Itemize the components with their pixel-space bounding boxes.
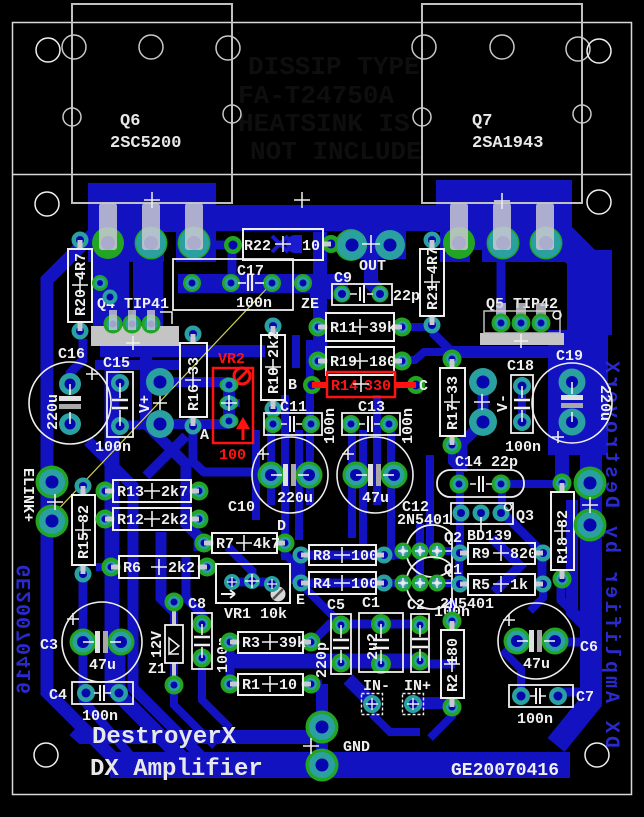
svg-text:220u: 220u	[45, 394, 62, 430]
svg-text:R1: R1	[242, 677, 260, 694]
svg-text:100n: 100n	[82, 708, 118, 725]
svg-text:R11: R11	[330, 320, 357, 337]
svg-text:DestroyerX: DestroyerX	[92, 724, 237, 751]
svg-text:1k: 1k	[510, 577, 528, 594]
svg-text:47u: 47u	[523, 656, 550, 673]
svg-text:VR2: VR2	[218, 351, 245, 368]
svg-text:E: E	[296, 592, 305, 609]
svg-text:2k2: 2k2	[161, 512, 188, 529]
svg-text:12V: 12V	[149, 631, 166, 658]
svg-text:R18 82: R18 82	[555, 510, 572, 564]
svg-text:ELINK+: ELINK+	[19, 468, 36, 522]
svg-text:2SC5200: 2SC5200	[110, 134, 181, 153]
svg-text:D: D	[277, 518, 286, 535]
svg-text:IN+: IN+	[404, 678, 431, 695]
svg-text:R15 82: R15 82	[76, 505, 93, 559]
svg-text:4k7: 4k7	[253, 536, 280, 553]
svg-text:C15: C15	[103, 355, 130, 372]
svg-text:C17: C17	[237, 263, 264, 280]
svg-text:39k: 39k	[279, 635, 306, 652]
svg-text:V+: V+	[137, 395, 154, 413]
svg-text:R7: R7	[216, 536, 234, 553]
svg-text:Q6: Q6	[120, 112, 140, 131]
svg-text:OUT: OUT	[359, 258, 386, 275]
svg-text:100n: 100n	[400, 408, 417, 444]
svg-text:R4: R4	[313, 576, 331, 593]
svg-text:820: 820	[510, 546, 537, 563]
svg-text:2u2: 2u2	[365, 633, 382, 660]
svg-text:FA-T24750A: FA-T24750A	[238, 81, 394, 111]
svg-text:C16: C16	[58, 346, 85, 363]
svg-text:220u: 220u	[277, 490, 313, 507]
svg-text:2k7: 2k7	[161, 484, 188, 501]
svg-text:C2: C2	[407, 597, 425, 614]
svg-text:220u: 220u	[596, 385, 613, 421]
svg-text:10: 10	[302, 238, 320, 255]
svg-text:47u: 47u	[362, 490, 389, 507]
svg-text:100n: 100n	[322, 408, 339, 444]
svg-text:GND: GND	[343, 739, 370, 756]
svg-text:R3: R3	[242, 635, 260, 652]
svg-text:180: 180	[369, 354, 396, 371]
svg-text:HEATSINK IS: HEATSINK IS	[238, 109, 410, 139]
svg-text:Z1: Z1	[148, 661, 166, 678]
svg-text:DISSIP TYPE: DISSIP TYPE	[248, 52, 420, 82]
svg-text:R12: R12	[117, 512, 144, 529]
svg-text:GE20070416: GE20070416	[451, 761, 559, 781]
svg-text:C9: C9	[334, 270, 352, 287]
svg-text:47u: 47u	[89, 657, 116, 674]
svg-text:R19: R19	[330, 354, 357, 371]
svg-text:ZE: ZE	[301, 296, 319, 313]
svg-text:100n: 100n	[505, 439, 541, 456]
svg-text:R6: R6	[123, 560, 141, 577]
svg-text:Q3: Q3	[516, 508, 534, 525]
svg-text:C4: C4	[49, 687, 67, 704]
svg-text:2k2: 2k2	[168, 560, 195, 577]
svg-text:100n: 100n	[517, 711, 553, 728]
svg-text:R2 180: R2 180	[445, 638, 462, 692]
svg-text:C5: C5	[327, 597, 345, 614]
svg-text:R8: R8	[313, 548, 331, 565]
svg-text:C3: C3	[40, 637, 58, 654]
svg-text:C6: C6	[580, 639, 598, 656]
svg-text:DX Amplifier: DX Amplifier	[90, 756, 263, 783]
svg-text:VR1 10k: VR1 10k	[224, 606, 287, 623]
svg-text:R22: R22	[244, 238, 271, 255]
svg-text:10: 10	[279, 677, 297, 694]
svg-text:R20 4R7: R20 4R7	[73, 253, 90, 316]
svg-text:Q7: Q7	[472, 112, 492, 131]
svg-text:R9: R9	[472, 546, 490, 563]
svg-text:R13: R13	[117, 484, 144, 501]
svg-text:C7: C7	[576, 689, 594, 706]
svg-text:R16 33: R16 33	[186, 357, 203, 411]
svg-text:C14 22p: C14 22p	[455, 454, 518, 471]
svg-text:100n: 100n	[95, 439, 131, 456]
svg-text:IN-: IN-	[363, 678, 390, 695]
svg-text:R10 2k2: R10 2k2	[266, 331, 283, 394]
svg-text:A: A	[200, 427, 209, 444]
svg-text:C11: C11	[280, 399, 307, 416]
svg-text:100: 100	[351, 548, 378, 565]
svg-text:R21 4R7: R21 4R7	[425, 247, 442, 310]
svg-text:100: 100	[219, 447, 246, 464]
svg-text:C13: C13	[358, 399, 385, 416]
svg-text:39k: 39k	[369, 320, 396, 337]
svg-text:C8: C8	[188, 596, 206, 613]
svg-text:NOT INCLUDE: NOT INCLUDE	[250, 137, 422, 167]
svg-text:2SA1943: 2SA1943	[472, 134, 543, 153]
svg-text:100: 100	[351, 576, 378, 593]
svg-text:Q2: Q2	[444, 530, 462, 547]
svg-text:C19: C19	[556, 348, 583, 365]
svg-text:22p: 22p	[393, 288, 420, 305]
svg-text:C1: C1	[362, 595, 380, 612]
svg-text:R5: R5	[472, 577, 490, 594]
svg-text:GE20070416: GE20070416	[14, 565, 37, 695]
svg-text:100n: 100n	[236, 295, 272, 312]
svg-text:C10: C10	[228, 499, 255, 516]
svg-text:330: 330	[364, 378, 391, 395]
svg-text:B: B	[288, 377, 297, 394]
svg-text:C18: C18	[507, 358, 534, 375]
svg-text:R17 33: R17 33	[445, 376, 462, 430]
svg-text:220p: 220p	[314, 642, 331, 678]
svg-text:C: C	[419, 378, 428, 395]
svg-text:R14: R14	[331, 378, 358, 395]
svg-text:V-: V-	[495, 394, 512, 412]
